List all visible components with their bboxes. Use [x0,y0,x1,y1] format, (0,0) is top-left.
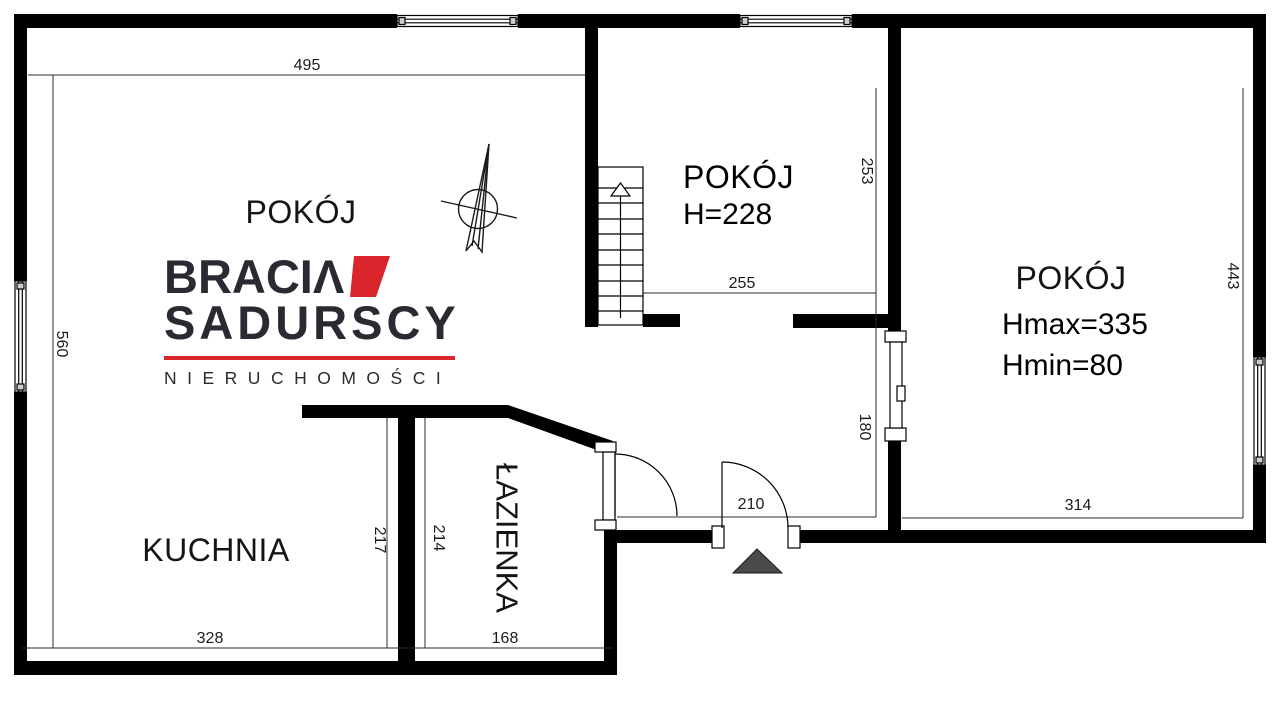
dim-label-left-height: 560 [53,331,69,358]
dim-label-hall-width: 210 [738,497,765,513]
dim-label-top-width: 495 [294,58,321,74]
wall [14,661,617,675]
logo-tagline: NIERUCHOMOŚCI [164,368,464,389]
wall [643,314,680,327]
wall [14,14,27,281]
room-label-middle: POKÓJ H=228 [683,161,794,230]
dim-label-hall-window: 180 [856,414,872,441]
wall [14,392,27,675]
wall [585,28,598,327]
room-label-middle-height: H=228 [683,200,794,230]
logo-rule [164,356,455,360]
wall [518,14,740,28]
wall [793,530,1266,543]
wall [302,405,508,418]
dim-label-bathroom-width: 168 [492,631,519,647]
floor-plan: 495 560 253 255 443 314 210 180 217 214 … [0,0,1280,701]
room-label-bathroom: ŁAZIENKA [492,463,523,613]
dim-label-kitchen-width: 328 [197,631,224,647]
dim-label-middle-height: 253 [858,158,874,185]
logo-name-line1: BRACIΛ [164,254,344,300]
wall [14,14,397,28]
dim-label-bathroom-height: 214 [430,525,446,552]
wall [793,314,890,328]
wall [604,530,617,675]
dim-label-kitchen-height: 217 [371,527,387,554]
window-icon [15,281,26,392]
stairs-icon [598,167,643,325]
entrance-marker-icon [733,549,782,573]
interior-window-icon [885,331,906,441]
wall [398,418,415,675]
dim-label-middle-width: 255 [729,276,756,292]
wall [1253,465,1266,543]
wall [1253,14,1266,357]
dim-label-right-height: 443 [1224,263,1240,290]
room-label-kitchen: KUCHNIA [142,534,290,566]
room-label-left: POKÓJ [246,196,357,228]
dim-label-right-width: 314 [1065,498,1092,514]
logo-name-line2: SADURSCY [164,300,464,346]
room-label-middle-title: POKÓJ [683,161,794,193]
wall [604,530,718,543]
window-icon [397,16,518,27]
north-arrow-icon [441,144,517,252]
room-label-right: POKÓJ [1016,262,1127,294]
window-icon [1254,357,1265,465]
wall [852,14,1266,28]
window-icon [740,16,852,27]
room-label-right-notes: Hmax=335 Hmin=80 [1002,310,1148,381]
wall [888,440,901,543]
agency-logo: BRACIΛ SADURSCY NIERUCHOMOŚCI [164,254,464,389]
wall [888,28,901,333]
logo-red-mark-icon [350,256,392,298]
room-label-right-hmin: Hmin=80 [1002,351,1148,381]
room-label-right-hmax: Hmax=335 [1002,310,1148,340]
